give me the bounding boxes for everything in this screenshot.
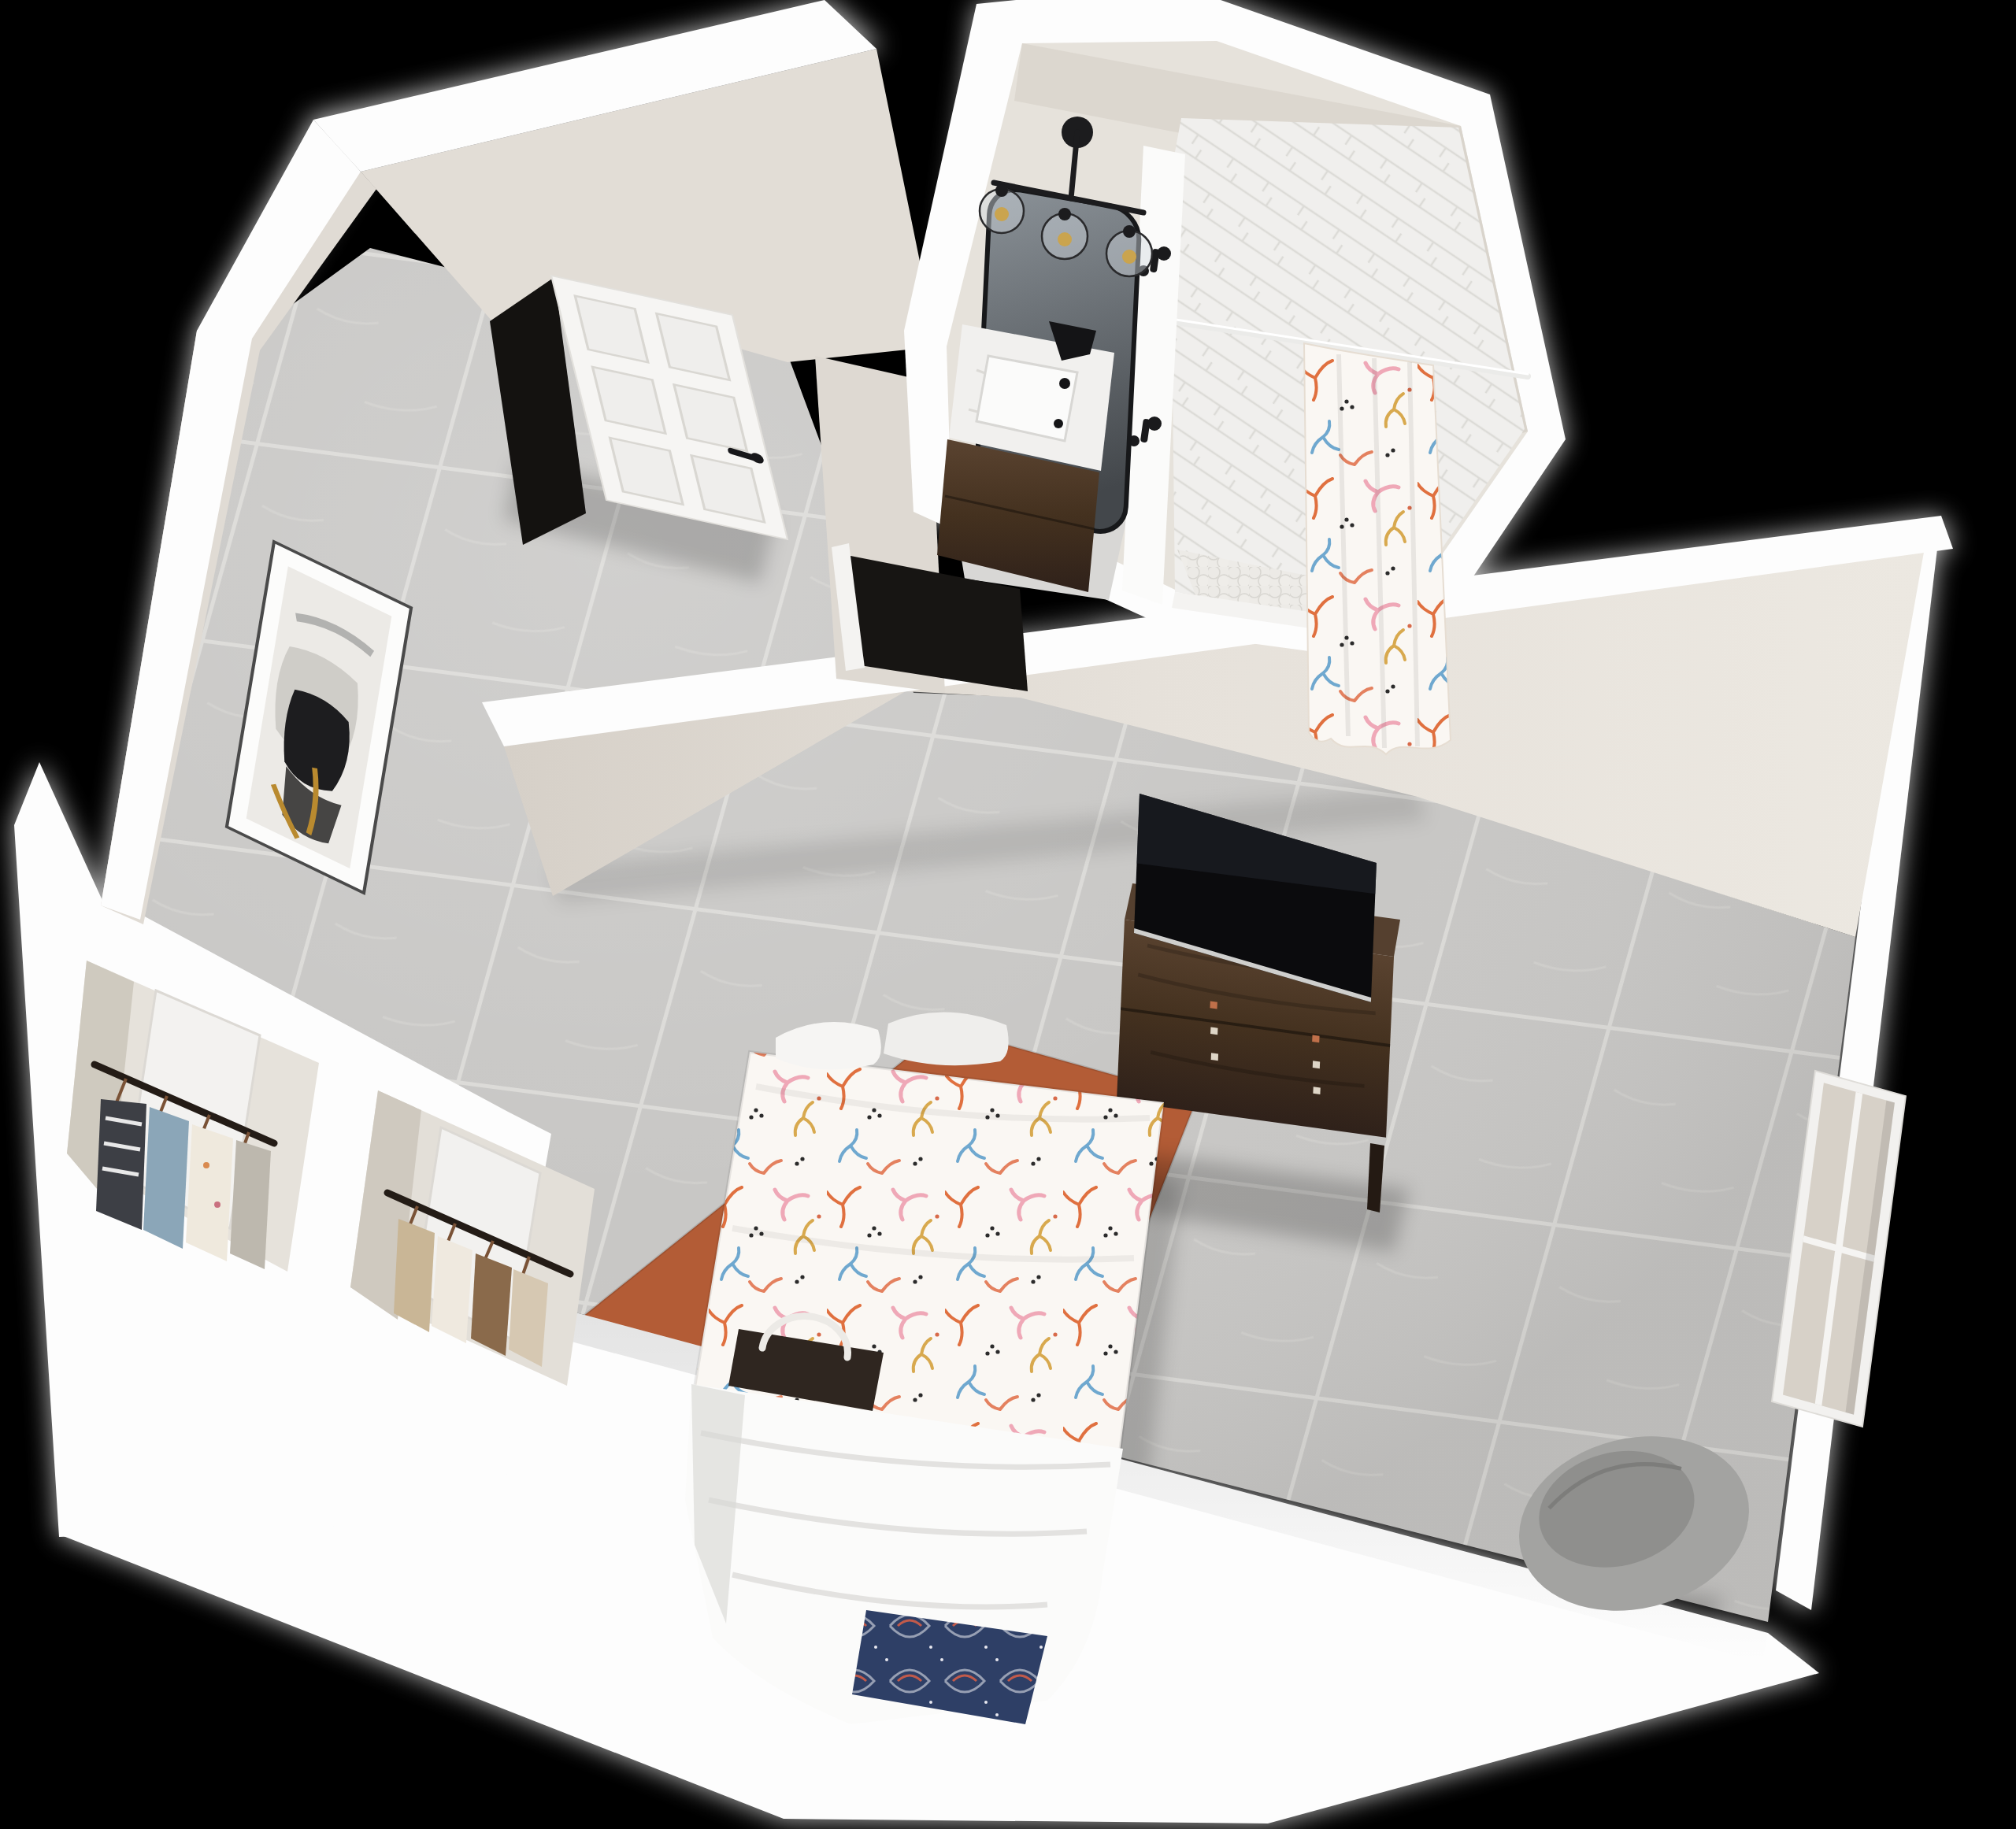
floorplan-render: [0, 0, 2016, 1829]
floorplan-svg: [0, 0, 2016, 1829]
bed-pillow: [884, 1012, 1009, 1065]
